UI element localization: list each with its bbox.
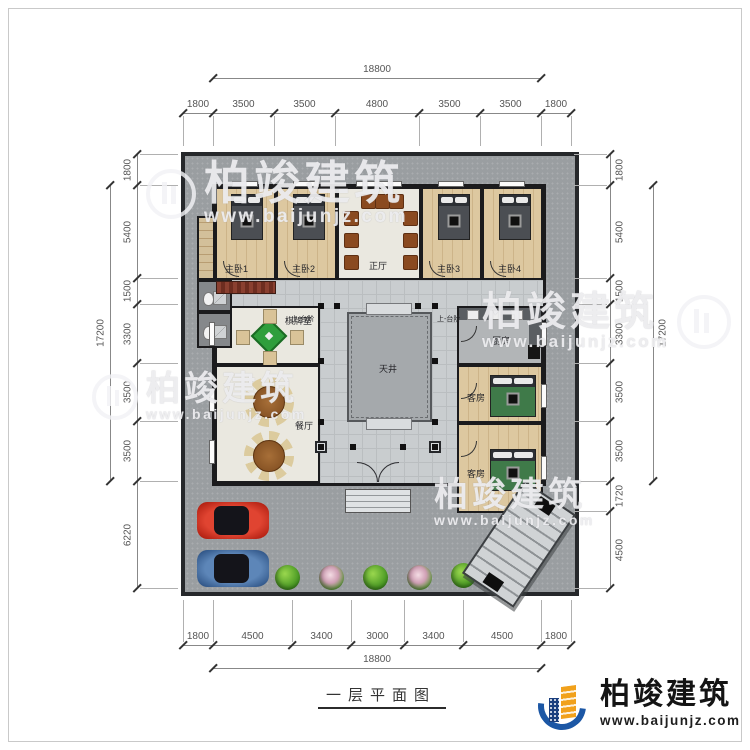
dim-extension xyxy=(463,600,464,642)
chair-icon xyxy=(344,233,359,248)
dim-label: 1800 xyxy=(615,158,626,180)
dining-table-icon xyxy=(244,377,294,427)
dim-tick xyxy=(209,109,218,118)
dim-tick xyxy=(209,74,218,83)
blue-car xyxy=(197,550,269,587)
chair-icon xyxy=(403,255,418,270)
dim-label: 3000 xyxy=(366,631,388,642)
courtyard-step xyxy=(366,418,412,430)
room-kitchen: 厨房 xyxy=(457,306,543,365)
dim-tick xyxy=(347,641,356,650)
steps-label: 上-台阶 xyxy=(437,314,460,324)
dim-tick xyxy=(133,584,142,593)
dim-extension xyxy=(541,600,542,642)
dim-tick xyxy=(649,477,658,486)
dim-tick xyxy=(209,664,218,673)
chair-icon xyxy=(403,233,418,248)
brand-name: 柏竣建筑 xyxy=(600,678,741,711)
dim-label: 3500 xyxy=(615,440,626,462)
dim-extension xyxy=(335,116,336,146)
door-arc-icon xyxy=(461,441,477,457)
dim-tick xyxy=(133,417,142,426)
bed-icon xyxy=(438,194,470,240)
dim-tick xyxy=(606,417,615,426)
dim-tick xyxy=(270,109,279,118)
dim-extension xyxy=(351,600,352,642)
brand-logo: 柏竣建筑 www.baijunjz.com xyxy=(536,678,741,734)
window-icon xyxy=(541,322,547,346)
kitchen-counter-icon xyxy=(529,320,541,348)
bed-icon xyxy=(499,194,531,240)
room-master3: 主卧3 xyxy=(421,187,482,280)
dim-label: 6220 xyxy=(123,523,134,545)
dim-line xyxy=(213,668,541,669)
dim-tick xyxy=(606,300,615,309)
dim-label: 3500 xyxy=(499,99,521,110)
column-dot xyxy=(432,444,438,450)
shower-icon xyxy=(213,325,227,339)
chair-icon xyxy=(403,211,418,226)
dim-label: 4500 xyxy=(615,538,626,560)
dim-label: 1800 xyxy=(545,99,567,110)
dim-label: 1800 xyxy=(187,99,209,110)
room-label: 正厅 xyxy=(369,259,387,272)
dim-label: 17200 xyxy=(96,319,107,347)
dim-line xyxy=(137,154,138,588)
dim-line xyxy=(213,78,541,79)
dim-label: 3500 xyxy=(615,381,626,403)
watermark-logo-icon xyxy=(92,374,138,420)
dim-tick xyxy=(400,641,409,650)
wardrobe-icon xyxy=(197,216,215,280)
chair-icon xyxy=(389,194,404,209)
window-icon xyxy=(209,440,215,464)
dim-label: 3400 xyxy=(422,631,444,642)
room-dining: 餐厅 xyxy=(215,365,320,483)
fridge-icon xyxy=(528,345,540,359)
dim-label: 1500 xyxy=(123,280,134,302)
room-label: 主卧4 xyxy=(498,262,521,275)
dim-label: 3400 xyxy=(310,631,332,642)
dim-tick xyxy=(606,584,615,593)
dim-label: 3300 xyxy=(123,322,134,344)
column-dot xyxy=(432,303,438,309)
dim-extension xyxy=(292,600,293,642)
dim-extension xyxy=(140,185,178,186)
dim-tick xyxy=(606,150,615,159)
courtyard-step xyxy=(366,303,412,315)
room-label: 餐厅 xyxy=(295,419,313,432)
watermark-logo-icon xyxy=(677,295,731,349)
window-icon xyxy=(209,388,215,412)
dim-label: 1500 xyxy=(615,280,626,302)
column-dot xyxy=(350,444,356,450)
dim-tick xyxy=(537,74,546,83)
rug-icon xyxy=(216,281,276,294)
column-dot xyxy=(400,444,406,450)
red-car xyxy=(197,502,269,539)
dim-tick xyxy=(459,641,468,650)
column-dot xyxy=(334,303,340,309)
room-label: 天井 xyxy=(379,362,397,375)
dim-extension xyxy=(480,116,481,146)
chair-icon xyxy=(263,309,277,324)
dim-label: 3500 xyxy=(293,99,315,110)
dim-tick xyxy=(179,109,188,118)
shrub-icon xyxy=(319,565,344,590)
dim-extension xyxy=(183,600,184,642)
bed-icon xyxy=(293,194,325,240)
dim-label: 3300 xyxy=(615,322,626,344)
dim-label: 17200 xyxy=(658,319,669,347)
dim-tick xyxy=(133,359,142,368)
dim-label: 18800 xyxy=(363,654,391,665)
dim-tick xyxy=(606,507,615,516)
dim-extension xyxy=(140,421,178,422)
dim-tick xyxy=(133,150,142,159)
dim-tick xyxy=(537,109,546,118)
entry-steps xyxy=(345,489,411,513)
dim-extension xyxy=(140,363,178,364)
dim-label: 1800 xyxy=(545,631,567,642)
dim-tick xyxy=(106,181,115,190)
drawing-title: 一层平面图 xyxy=(326,684,436,705)
room-label: 主卧1 xyxy=(225,262,248,275)
dining-table-icon xyxy=(244,431,294,481)
room-master1: 主卧1 xyxy=(215,187,276,280)
dim-tick xyxy=(537,641,546,650)
room-master4: 主卧4 xyxy=(482,187,543,280)
dim-tick xyxy=(133,181,142,190)
door-arc-icon xyxy=(461,326,477,342)
column-dot xyxy=(318,419,324,425)
dim-line xyxy=(653,185,654,481)
shrub-icon xyxy=(363,565,388,590)
window-icon xyxy=(438,181,464,187)
dim-tick xyxy=(288,641,297,650)
dim-label: 4800 xyxy=(366,99,388,110)
column-dot xyxy=(318,303,324,309)
floorplan-sheet: 主卧1 主卧2 正厅 主卧3 主卧4 xyxy=(0,0,750,750)
room-label: 客房 xyxy=(467,467,485,480)
bed-icon xyxy=(490,375,536,417)
dim-extension xyxy=(140,154,178,155)
column-dot xyxy=(432,419,438,425)
dim-label: 3500 xyxy=(123,381,134,403)
window-icon xyxy=(356,181,402,187)
room-label: 厨房 xyxy=(492,334,510,347)
dim-tick xyxy=(133,300,142,309)
steps-label: 上-台阶 xyxy=(291,314,314,324)
dim-tick xyxy=(606,477,615,486)
room-master2: 主卧2 xyxy=(276,187,337,280)
dim-extension xyxy=(404,600,405,642)
dim-label: 4500 xyxy=(241,631,263,642)
dim-extension xyxy=(140,588,178,589)
dim-tick xyxy=(106,477,115,486)
window-icon xyxy=(499,181,525,187)
dim-extension xyxy=(213,116,214,146)
dim-tick xyxy=(179,641,188,650)
dim-tick xyxy=(567,641,576,650)
chair-icon xyxy=(290,330,304,345)
dim-extension xyxy=(274,116,275,146)
sink-icon xyxy=(467,310,479,320)
chair-icon xyxy=(263,351,277,366)
shrub-icon xyxy=(407,565,432,590)
dim-label: 3500 xyxy=(438,99,460,110)
dim-tick xyxy=(476,109,485,118)
dim-tick xyxy=(649,181,658,190)
chair-icon xyxy=(236,330,250,345)
counter-appliance-icon xyxy=(511,310,523,320)
dim-extension xyxy=(571,116,572,146)
dim-tick xyxy=(415,109,424,118)
room-label: 主卧3 xyxy=(437,262,460,275)
window-icon xyxy=(541,384,547,408)
dim-label: 5400 xyxy=(615,220,626,242)
dim-tick xyxy=(133,477,142,486)
bed-icon xyxy=(231,194,263,240)
dim-line xyxy=(183,113,571,114)
shrub-icon xyxy=(275,565,300,590)
dim-tick xyxy=(537,664,546,673)
dim-label: 1800 xyxy=(187,631,209,642)
stove-icon xyxy=(489,310,501,320)
dim-line xyxy=(110,185,111,481)
dim-label: 1720 xyxy=(615,485,626,507)
dim-extension xyxy=(571,600,572,642)
chair-icon xyxy=(344,255,359,270)
dim-tick xyxy=(567,109,576,118)
brand-url: www.baijunjz.com xyxy=(600,713,741,728)
dim-tick xyxy=(606,181,615,190)
room-hall: 正厅 xyxy=(337,187,421,280)
dim-extension xyxy=(419,116,420,146)
floorplan: 主卧1 主卧2 正厅 主卧3 主卧4 xyxy=(181,152,579,596)
window-icon xyxy=(541,456,547,480)
dim-extension xyxy=(140,278,178,279)
dim-extension xyxy=(140,304,178,305)
room-label: 主卧2 xyxy=(292,262,315,275)
dim-label: 5400 xyxy=(123,220,134,242)
window-icon xyxy=(232,181,258,187)
chair-icon xyxy=(375,194,390,209)
brand-logo-icon xyxy=(536,678,592,734)
dim-line xyxy=(183,645,571,646)
title-underline xyxy=(318,707,446,709)
dim-tick xyxy=(606,359,615,368)
dim-label: 1800 xyxy=(123,158,134,180)
dim-extension xyxy=(140,481,178,482)
dim-label: 4500 xyxy=(491,631,513,642)
chair-icon xyxy=(344,211,359,226)
dim-tick xyxy=(209,641,218,650)
column-dot xyxy=(432,358,438,364)
dim-tick xyxy=(133,274,142,283)
dim-extension xyxy=(541,116,542,146)
window-icon xyxy=(209,322,215,346)
column-dot xyxy=(415,303,421,309)
dim-tick xyxy=(331,109,340,118)
room-label: 客房 xyxy=(467,391,485,404)
column-dot xyxy=(318,444,324,450)
window-icon xyxy=(293,181,319,187)
chair-icon xyxy=(361,194,376,209)
dim-extension xyxy=(213,600,214,642)
dim-tick xyxy=(606,274,615,283)
dim-extension xyxy=(183,116,184,146)
dim-label: 3500 xyxy=(232,99,254,110)
room-guest1: 客房 xyxy=(457,365,543,423)
dim-label: 18800 xyxy=(363,64,391,75)
column-dot xyxy=(318,358,324,364)
dim-label: 3500 xyxy=(123,440,134,462)
dim-line xyxy=(610,154,611,588)
